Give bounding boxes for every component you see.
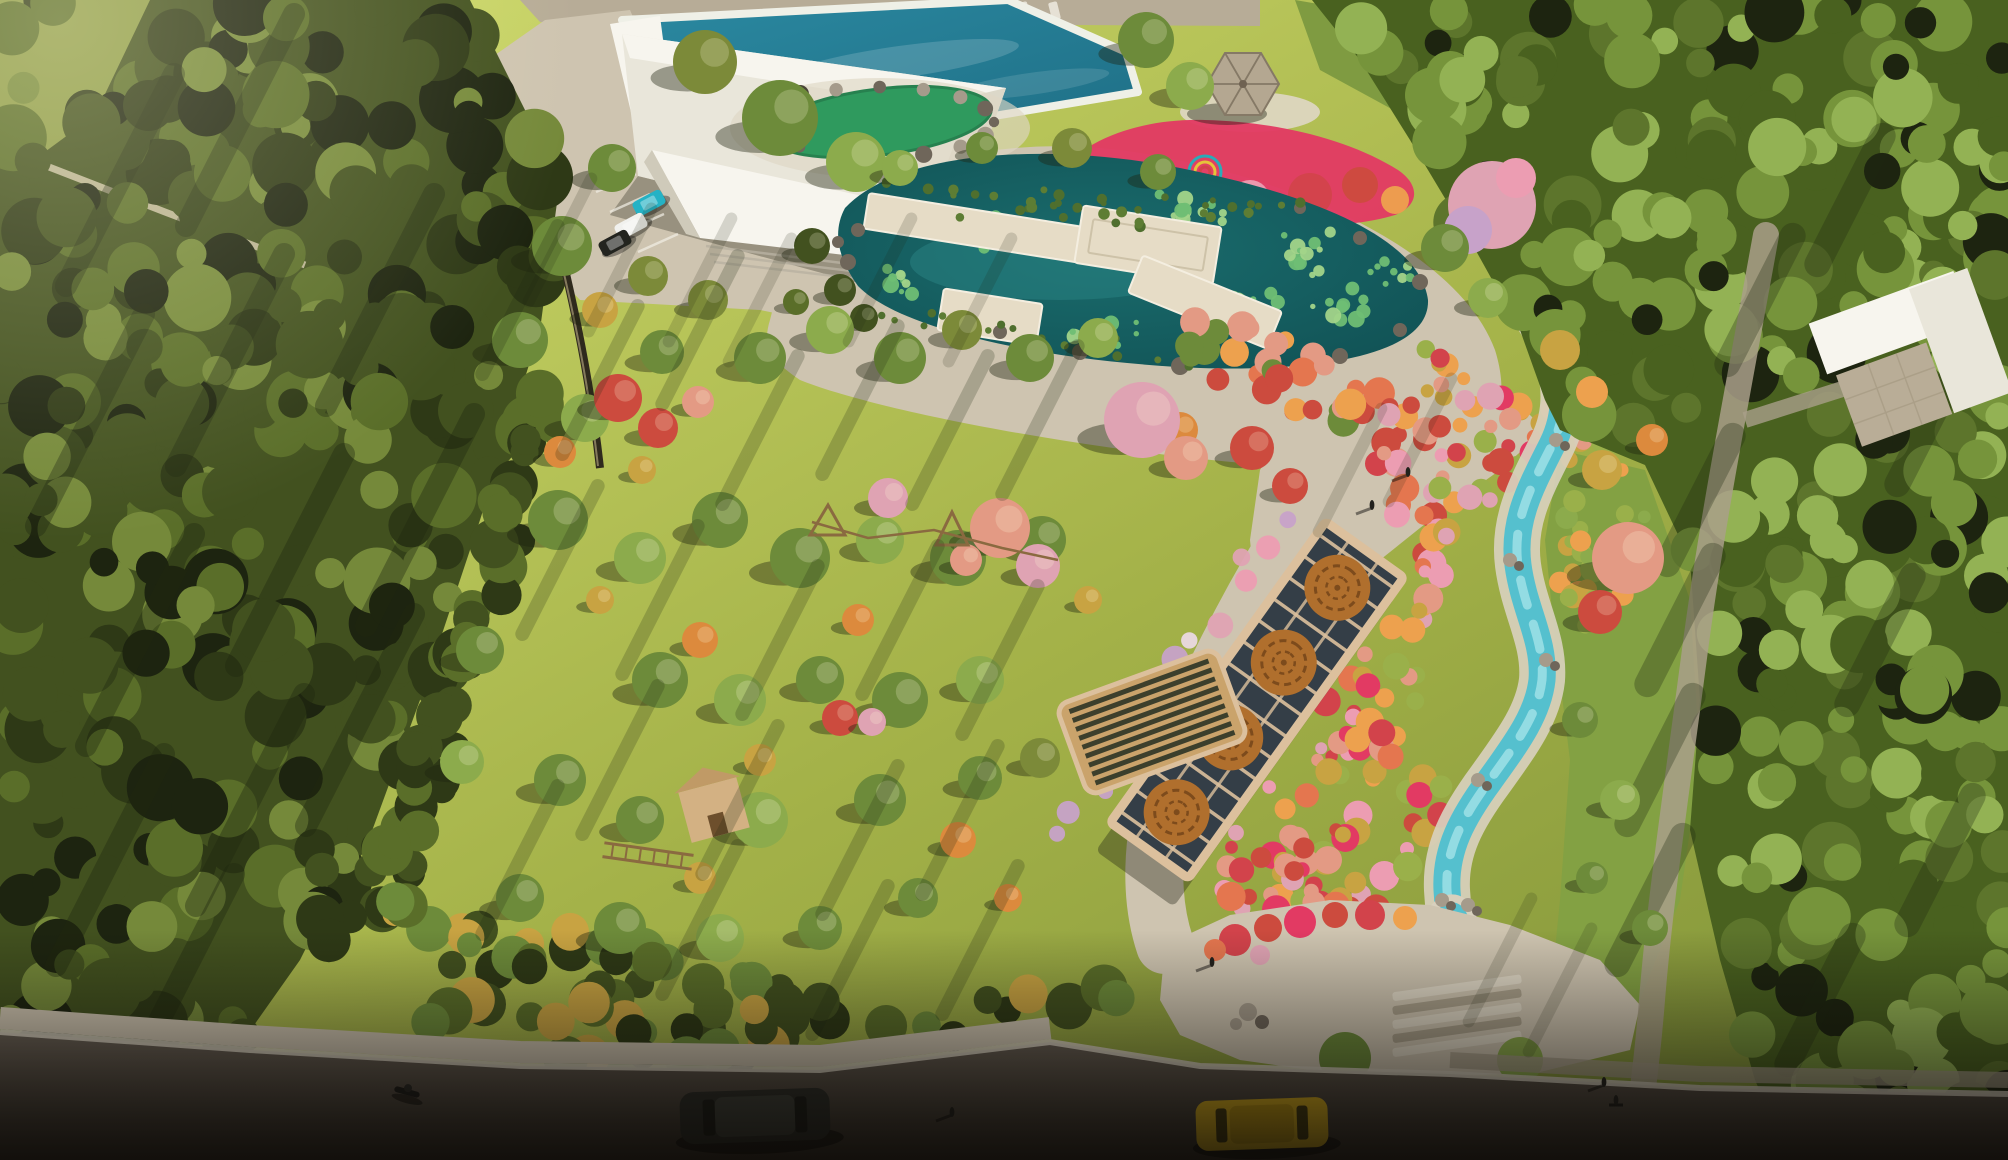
gold-tree [1540,330,1580,370]
pavilion-finial [1239,80,1247,88]
bottom-vignette [0,930,2008,1160]
orange-tree [1576,376,1608,408]
park-aerial-render [0,0,2008,1160]
park-scene [0,0,2008,1160]
cherry-tree [1496,158,1536,198]
